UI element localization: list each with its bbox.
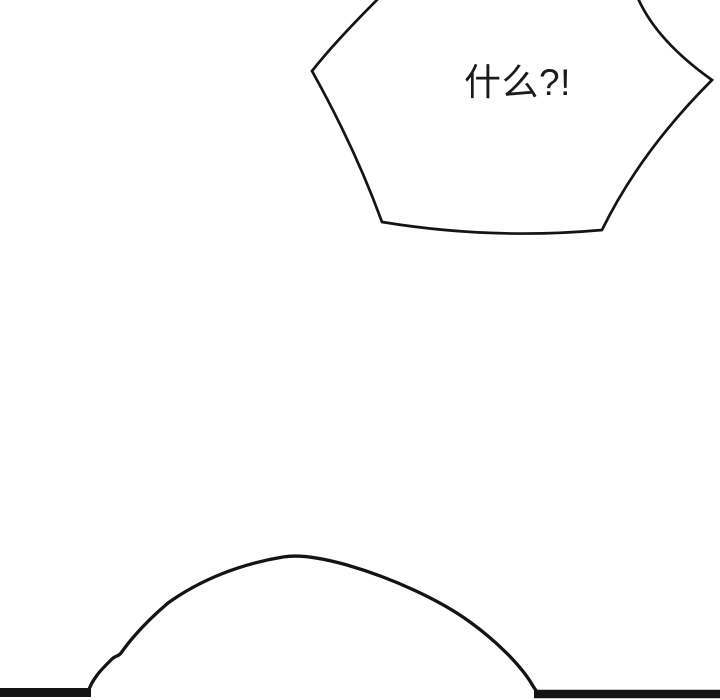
hill-curve: [88, 556, 537, 692]
panel-artwork: [0, 0, 720, 700]
speech-bubble-shape: [312, 0, 712, 234]
speech-bubble-text: 什么?!: [464, 63, 574, 107]
comic-panel: 什么?!: [0, 0, 720, 700]
